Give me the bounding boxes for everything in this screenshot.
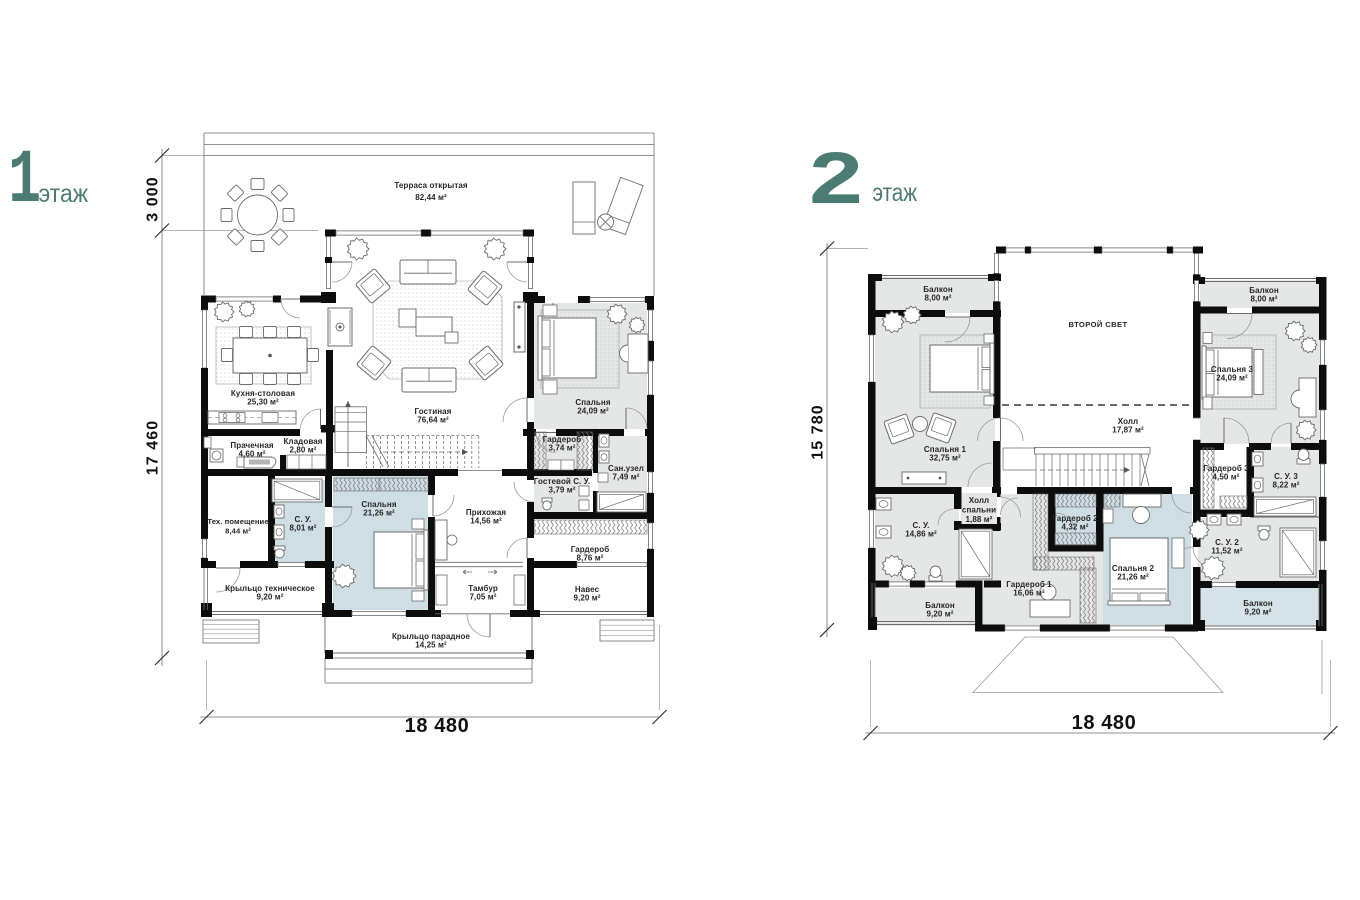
svg-text:2,80 м²: 2,80 м² <box>289 446 316 455</box>
svg-text:4,60 м²: 4,60 м² <box>238 450 265 459</box>
svg-text:11,52 м²: 11,52 м² <box>1211 547 1242 556</box>
svg-text:9,20 м²: 9,20 м² <box>256 593 283 602</box>
svg-text:спальни: спальни <box>962 506 996 515</box>
svg-text:25,30 м²: 25,30 м² <box>247 398 279 407</box>
svg-text:18 480: 18 480 <box>405 715 470 737</box>
svg-text:7,05 м²: 7,05 м² <box>469 593 496 602</box>
svg-text:24,09 м²: 24,09 м² <box>1216 374 1248 383</box>
svg-text:этаж: этаж <box>873 178 918 206</box>
svg-text:Терраса открытая: Терраса открытая <box>394 181 468 190</box>
svg-text:17 460: 17 460 <box>145 420 162 476</box>
svg-text:14,25 м²: 14,25 м² <box>415 641 447 650</box>
svg-text:8,44 м²: 8,44 м² <box>225 527 251 536</box>
svg-text:21,26 м²: 21,26 м² <box>363 509 395 518</box>
svg-text:4,32 м²: 4,32 м² <box>1061 523 1088 532</box>
svg-text:3,79 м²: 3,79 м² <box>548 486 575 495</box>
svg-text:Тех. помещение: Тех. помещение <box>207 517 268 526</box>
svg-text:82,44 м²: 82,44 м² <box>415 193 447 202</box>
svg-text:1,88 м²: 1,88 м² <box>965 515 992 524</box>
svg-text:8,22 м²: 8,22 м² <box>1272 481 1299 490</box>
svg-text:16,06 м²: 16,06 м² <box>1013 589 1045 598</box>
svg-text:2: 2 <box>807 141 865 227</box>
svg-text:32,75 м²: 32,75 м² <box>929 454 961 463</box>
svg-text:24,09 м²: 24,09 м² <box>577 407 609 416</box>
svg-text:76,64 м²: 76,64 м² <box>417 416 449 425</box>
svg-text:7,49 м²: 7,49 м² <box>612 473 639 482</box>
svg-text:21,26 м²: 21,26 м² <box>1117 573 1149 582</box>
svg-text:Холл: Холл <box>969 496 989 505</box>
svg-text:этаж: этаж <box>39 180 89 208</box>
svg-text:8,76 м²: 8,76 м² <box>576 554 603 563</box>
svg-text:8,00 м²: 8,00 м² <box>1250 295 1277 304</box>
svg-text:15 780: 15 780 <box>810 404 827 460</box>
svg-text:9,20 м²: 9,20 м² <box>926 610 953 619</box>
svg-text:14,86 м²: 14,86 м² <box>905 530 937 539</box>
svg-text:9,20 м²: 9,20 м² <box>1244 608 1271 617</box>
svg-text:17,87 м²: 17,87 м² <box>1112 426 1144 435</box>
svg-text:8,00 м²: 8,00 м² <box>924 294 951 303</box>
svg-text:3,74 м²: 3,74 м² <box>548 444 575 453</box>
svg-text:ВТОРОЙ СВЕТ: ВТОРОЙ СВЕТ <box>1068 320 1127 329</box>
svg-text:14,56 м²: 14,56 м² <box>470 517 502 526</box>
svg-text:1: 1 <box>8 138 41 224</box>
svg-text:8,01 м²: 8,01 м² <box>289 524 316 533</box>
svg-text:9,20 м²: 9,20 м² <box>573 594 600 603</box>
svg-text:18 480: 18 480 <box>1072 712 1137 734</box>
svg-text:3 000: 3 000 <box>145 176 162 222</box>
svg-text:4,50 м²: 4,50 м² <box>1212 473 1239 482</box>
